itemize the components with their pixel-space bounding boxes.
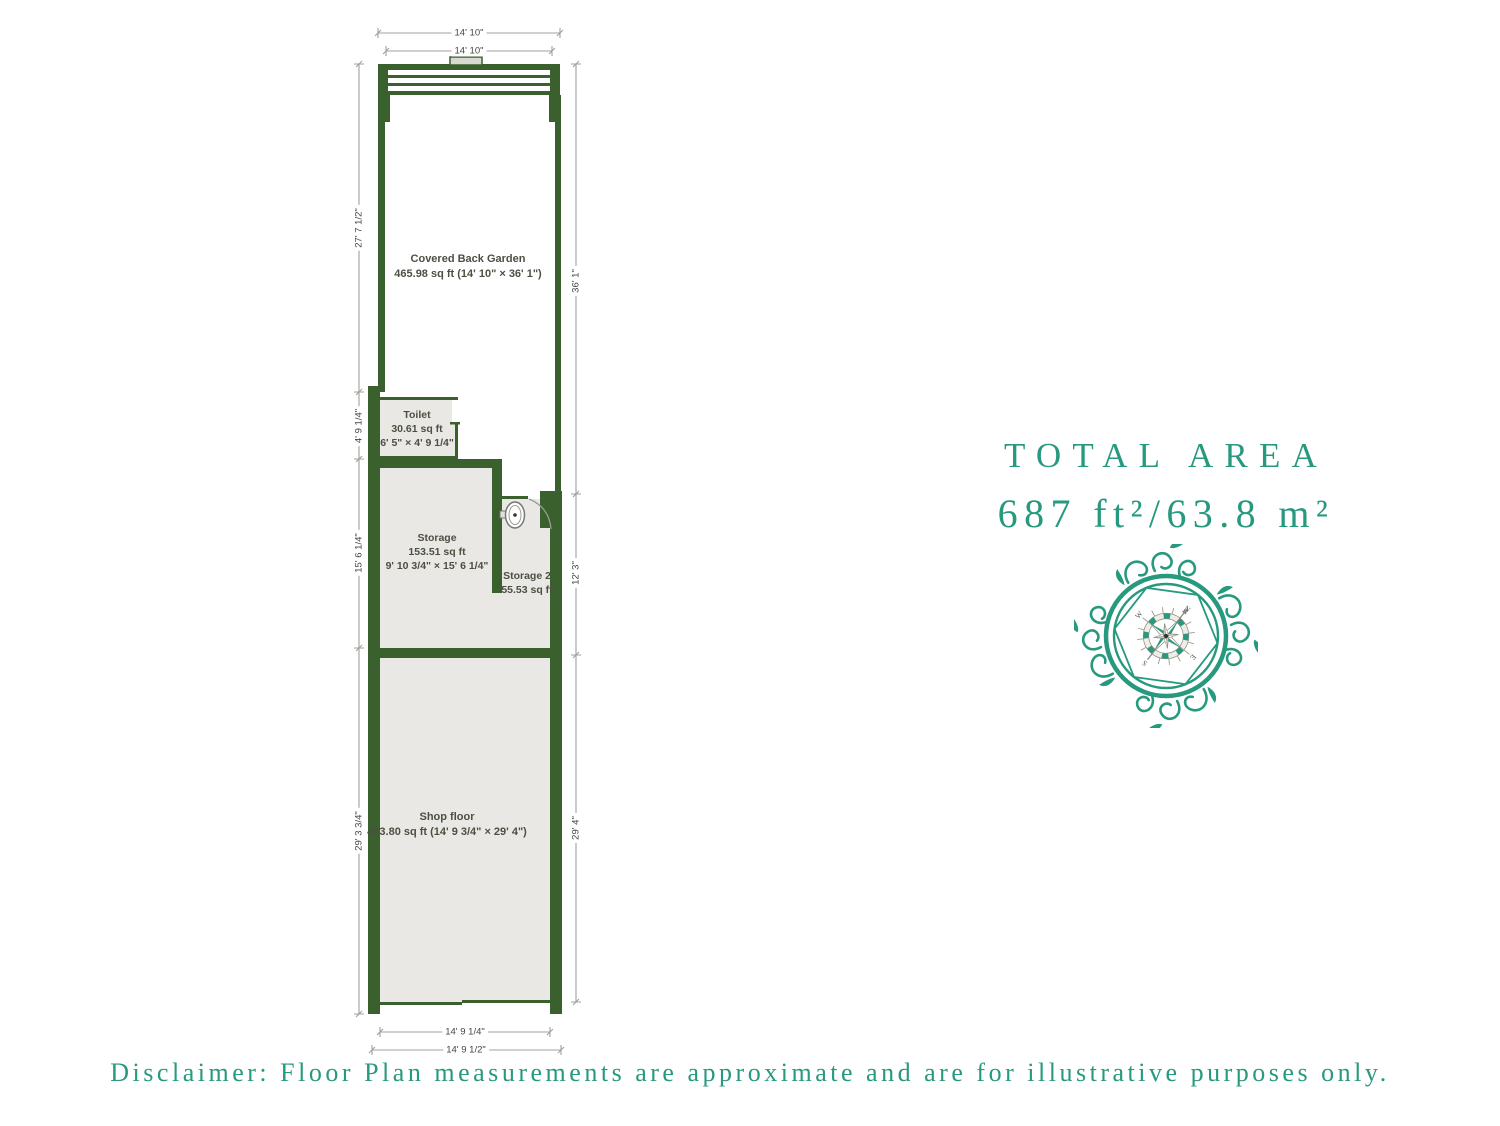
- dim-left-shop: 29' 3 3/4": [354, 808, 365, 854]
- room-label-storage: Storage 153.51 sq ft 9' 10 3/4" × 15' 6 …: [386, 532, 489, 574]
- room-area: 433.80 sq ft (14' 9 3/4" × 29' 4"): [367, 825, 527, 840]
- compass-logo: N E S W: [1074, 544, 1258, 728]
- room-dims: 9' 10 3/4" × 15' 6 1/4": [386, 560, 489, 574]
- total-area-panel: TOTAL AREA 687 ft²/63.8 m²: [936, 436, 1396, 537]
- shutter-stripes: [388, 70, 550, 91]
- room-name: Storage 2: [501, 570, 552, 584]
- total-area-value: 687 ft²/63.8 m²: [936, 490, 1396, 537]
- dim-left-storage: 15' 6 1/4": [354, 530, 365, 576]
- room-name: Shop floor: [367, 810, 527, 825]
- room-area: 465.98 sq ft (14' 10" × 36' 1"): [394, 267, 541, 282]
- room-label-shop: Shop floor 433.80 sq ft (14' 9 3/4" × 29…: [367, 810, 527, 839]
- dim-right-garden: 36' 1": [571, 266, 582, 296]
- room-name: Toilet: [380, 409, 454, 423]
- room-fills: [374, 397, 550, 1002]
- dim-top-outer: 14' 10": [452, 28, 487, 39]
- dim-bottom-outer: 14' 9 1/2": [443, 1045, 489, 1056]
- room-name: Storage: [386, 532, 489, 546]
- dim-right-storage2: 12' 3": [571, 558, 582, 588]
- dim-left-garden: 27' 7 1/2": [354, 205, 365, 251]
- room-area: 55.53 sq ft: [501, 584, 552, 598]
- room-label-toilet: Toilet 30.61 sq ft 6' 5" × 4' 9 1/4": [380, 409, 454, 451]
- compass-rose: N E S W: [1111, 581, 1220, 690]
- total-area-title: TOTAL AREA: [936, 436, 1396, 476]
- floorplan-page: Covered Back Garden 465.98 sq ft (14' 10…: [0, 0, 1500, 1126]
- room-name: Covered Back Garden: [394, 252, 541, 267]
- room-label-storage2: Storage 2 55.53 sq ft: [501, 570, 552, 598]
- dim-left-toilet: 4' 9 1/4": [354, 406, 365, 446]
- disclaimer-text: Disclaimer: Floor Plan measurements are …: [0, 1058, 1500, 1088]
- room-area: 30.61 sq ft: [380, 423, 454, 437]
- dim-right-shop: 29' 4": [571, 813, 582, 843]
- dim-bottom-inner: 14' 9 1/4": [442, 1027, 488, 1038]
- dim-top-inner: 14' 10": [452, 46, 487, 57]
- floorplan-drawing: [0, 0, 1500, 1126]
- room-area: 153.51 sq ft: [386, 546, 489, 560]
- room-label-garden: Covered Back Garden 465.98 sq ft (14' 10…: [394, 252, 541, 281]
- room-dims: 6' 5" × 4' 9 1/4": [380, 437, 454, 451]
